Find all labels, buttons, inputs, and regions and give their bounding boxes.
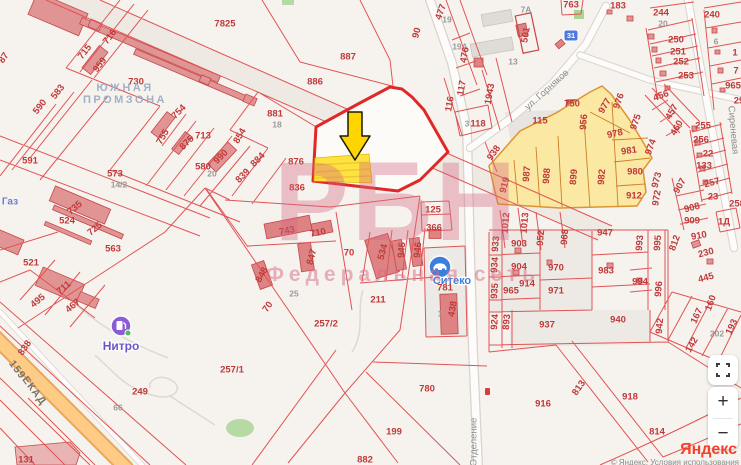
transit-stop-icon xyxy=(485,388,490,395)
street-label: Сиреневая xyxy=(725,105,740,154)
parcel-label: 591 xyxy=(22,156,39,167)
street-label: Отделение xyxy=(469,418,480,465)
parcel-label: 252 xyxy=(673,57,689,68)
poi-fuel-station[interactable]: Нитро xyxy=(103,316,140,353)
area-label: ПРОМЗОНА xyxy=(83,94,167,106)
road-badge-number: 31 xyxy=(567,31,575,40)
parcel-label: 909 xyxy=(684,216,700,227)
parcel-label: 115 xyxy=(532,116,548,127)
parcel-label: 19 xyxy=(442,14,452,24)
parcel-label: 814 xyxy=(649,427,666,438)
parcel-label: 66 xyxy=(113,402,123,412)
parcel-label: 495 xyxy=(28,291,48,310)
map-viewport: 31 Нитро Ситеко 782571671595973058359087… xyxy=(0,0,741,465)
parcel-label: 854 xyxy=(231,126,249,146)
parcel-label: 160 xyxy=(703,294,719,313)
parcel-label: 933 xyxy=(490,236,502,253)
parcel-label: 250 xyxy=(668,35,684,46)
parcel-label: 3 xyxy=(465,118,470,128)
parcel-label: 249 xyxy=(132,387,148,398)
parcel-label: 983 xyxy=(598,266,614,277)
parcel-label: 965 xyxy=(725,81,741,92)
parcel-label: 995 xyxy=(652,234,664,251)
parcel-label: 743 xyxy=(278,224,296,238)
yandex-logo[interactable]: Яндекс xyxy=(680,441,737,459)
parcel-label: 253 xyxy=(678,71,694,82)
parcel-label: 882 xyxy=(357,455,373,465)
parcel-label: 118 xyxy=(470,119,485,130)
parcel-label: 996 xyxy=(653,281,665,298)
parcel-label: 23 xyxy=(708,192,719,203)
parcel-label: 899 xyxy=(568,169,580,186)
cadastral-map[interactable]: 31 Нитро Ситеко 782571671595973058359087… xyxy=(0,0,741,465)
parcel-label: 13 xyxy=(508,56,518,66)
parcel-label: 240 xyxy=(704,10,720,21)
copyright-text[interactable]: © Яндекс, Условия использования xyxy=(611,458,739,465)
parcel-label: 956 xyxy=(578,114,590,131)
parcel-label: 980 xyxy=(627,167,643,178)
parcel-label: 904 xyxy=(511,262,528,273)
parcel-label: 968 xyxy=(559,229,571,246)
parcel-label: 573 xyxy=(107,169,123,180)
parcel-label: 965 xyxy=(503,286,520,297)
zoom-in-button[interactable]: + xyxy=(708,387,738,418)
parcel-label: 750 xyxy=(564,99,580,110)
parcel-label: 886 xyxy=(307,77,323,88)
parcel-label: 934 xyxy=(489,256,501,273)
parcel-label: 230 xyxy=(697,246,715,261)
parcel-label: 257/1 xyxy=(220,365,244,376)
parcel-label: 476 xyxy=(458,46,472,64)
parcel-label: 131 xyxy=(18,455,35,465)
parcel-label: 971 xyxy=(548,286,565,297)
parcel-label: 994 xyxy=(632,277,649,288)
parcel-label: 940 xyxy=(610,315,626,326)
parcel-label: 952 xyxy=(535,230,547,247)
parcel-label: 445 xyxy=(697,270,716,285)
parcel-label: 780 xyxy=(419,384,435,395)
parcel-label: 202 xyxy=(710,328,724,338)
parcel-label: 942 xyxy=(654,318,666,335)
parcel-label: 183 xyxy=(610,1,626,12)
parcel-label: 125 xyxy=(425,205,442,216)
parcel-label: 974 xyxy=(643,137,659,156)
parcel-label: 876 xyxy=(288,157,304,168)
parcel-label: 946 xyxy=(412,242,424,259)
parcel-label: 839 xyxy=(234,167,253,186)
parcel-label: 258 xyxy=(729,199,741,210)
parcel-label: 20 xyxy=(207,168,217,178)
parcel-label: 211 xyxy=(370,295,386,306)
parcel-label: 912 xyxy=(626,191,642,202)
parcel-label: 975 xyxy=(628,112,644,131)
poi-fuel-label: Нитро xyxy=(103,339,140,353)
parcel-label: 910 xyxy=(690,229,708,243)
parcel-label: 813 xyxy=(570,378,588,397)
parcel-label: 583 xyxy=(49,82,67,101)
parcel-label: 781 xyxy=(437,283,454,294)
open-status-dot xyxy=(125,330,131,336)
parcel-label: 590 xyxy=(31,97,49,116)
parcel-label: 256 xyxy=(693,135,709,146)
parcel-label: 18 xyxy=(272,119,282,129)
parcel-label: 257/2 xyxy=(314,319,338,330)
parcel-label: 836 xyxy=(289,183,305,194)
parcel-label: 90 xyxy=(410,26,423,39)
parcel-label: 22 xyxy=(703,149,714,160)
parcel-label: 935 xyxy=(489,282,501,299)
parcel-label: 1Д xyxy=(718,217,730,228)
parcel-label: 244 xyxy=(653,8,670,19)
parcel-label: 70 xyxy=(260,300,275,315)
area-label: Газ xyxy=(2,197,18,208)
parcel-label: 887 xyxy=(340,52,356,63)
parcel-label: 14/2 xyxy=(111,179,128,189)
parcel-label: 199 xyxy=(386,427,402,438)
parcel-label: 710 xyxy=(309,226,327,240)
terrain-layer xyxy=(46,0,650,437)
fullscreen-icon xyxy=(716,363,730,377)
parcel-label: 116 xyxy=(443,96,456,113)
parcel-label: 70 xyxy=(344,248,355,259)
parcel-label: 947 xyxy=(597,228,613,239)
parcel-label: 133 xyxy=(696,161,712,172)
parcel-label: 982 xyxy=(596,169,608,186)
parcel-label: 987 xyxy=(521,166,533,183)
parcel-label: 7825 xyxy=(214,19,236,30)
parcel-label: 524 xyxy=(59,216,76,227)
parcel-label: 87 xyxy=(0,51,12,66)
parcel-label: 563 xyxy=(105,244,121,255)
parcel-label: 366 xyxy=(426,223,442,234)
parcel-label: 907 xyxy=(671,176,688,195)
parcel-label: 1 xyxy=(438,308,443,318)
parcel-label: 970 xyxy=(548,263,564,274)
parcel-label: 945 xyxy=(396,241,408,258)
parcel-label: 973 xyxy=(650,171,665,189)
parcel-label: 981 xyxy=(620,144,638,157)
parcel-label: 6 xyxy=(714,36,719,46)
parcel-label: 255 xyxy=(695,121,712,132)
parcel-label: 1 xyxy=(732,48,738,59)
parcel-label: 1013 xyxy=(519,212,532,234)
parcel-label: 918 xyxy=(622,392,638,403)
parcel-label: 988 xyxy=(541,168,553,185)
parcel-label: 937 xyxy=(539,320,555,331)
parcel-label: 1012 xyxy=(500,212,513,234)
parcel-label: 1943 xyxy=(483,83,498,106)
parcel-label: 501 xyxy=(519,26,533,44)
selected-parcel-highlight xyxy=(314,154,372,183)
parcel-label: 763 xyxy=(563,0,579,11)
parcel-label: 521 xyxy=(23,258,40,269)
parcel-label: 893 xyxy=(501,314,513,331)
parcel-label: 457 xyxy=(663,102,680,121)
parcel-label: 7 xyxy=(733,66,738,77)
parcel-label: 25 xyxy=(289,288,299,298)
parcel-label: 908 xyxy=(683,201,701,216)
parcel-label: 972 xyxy=(650,189,664,207)
parcel-label: 924 xyxy=(489,313,501,330)
parcel-label: 812 xyxy=(667,234,683,253)
parcel-label: 20 xyxy=(658,18,668,28)
parcel-label: 916 xyxy=(535,399,551,410)
parcel-label: 7А xyxy=(521,4,532,14)
parcel-label: 257 xyxy=(703,176,721,191)
fullscreen-button[interactable] xyxy=(708,355,738,385)
zoom-control: + − xyxy=(708,387,738,449)
road-badge: 31 xyxy=(564,30,578,41)
parcel-label: 903 xyxy=(511,239,527,250)
parcel-label: 881 xyxy=(267,109,284,120)
parcel-label: 884 xyxy=(249,150,268,169)
area-label: ЮЖНАЯ xyxy=(96,82,153,94)
parcel-label: 142 xyxy=(683,335,700,354)
parcel-label: 976 xyxy=(611,92,627,111)
parcel-label: 993 xyxy=(634,235,646,252)
parcel-label: 914 xyxy=(519,279,536,290)
parcel-label: 713 xyxy=(195,131,211,142)
